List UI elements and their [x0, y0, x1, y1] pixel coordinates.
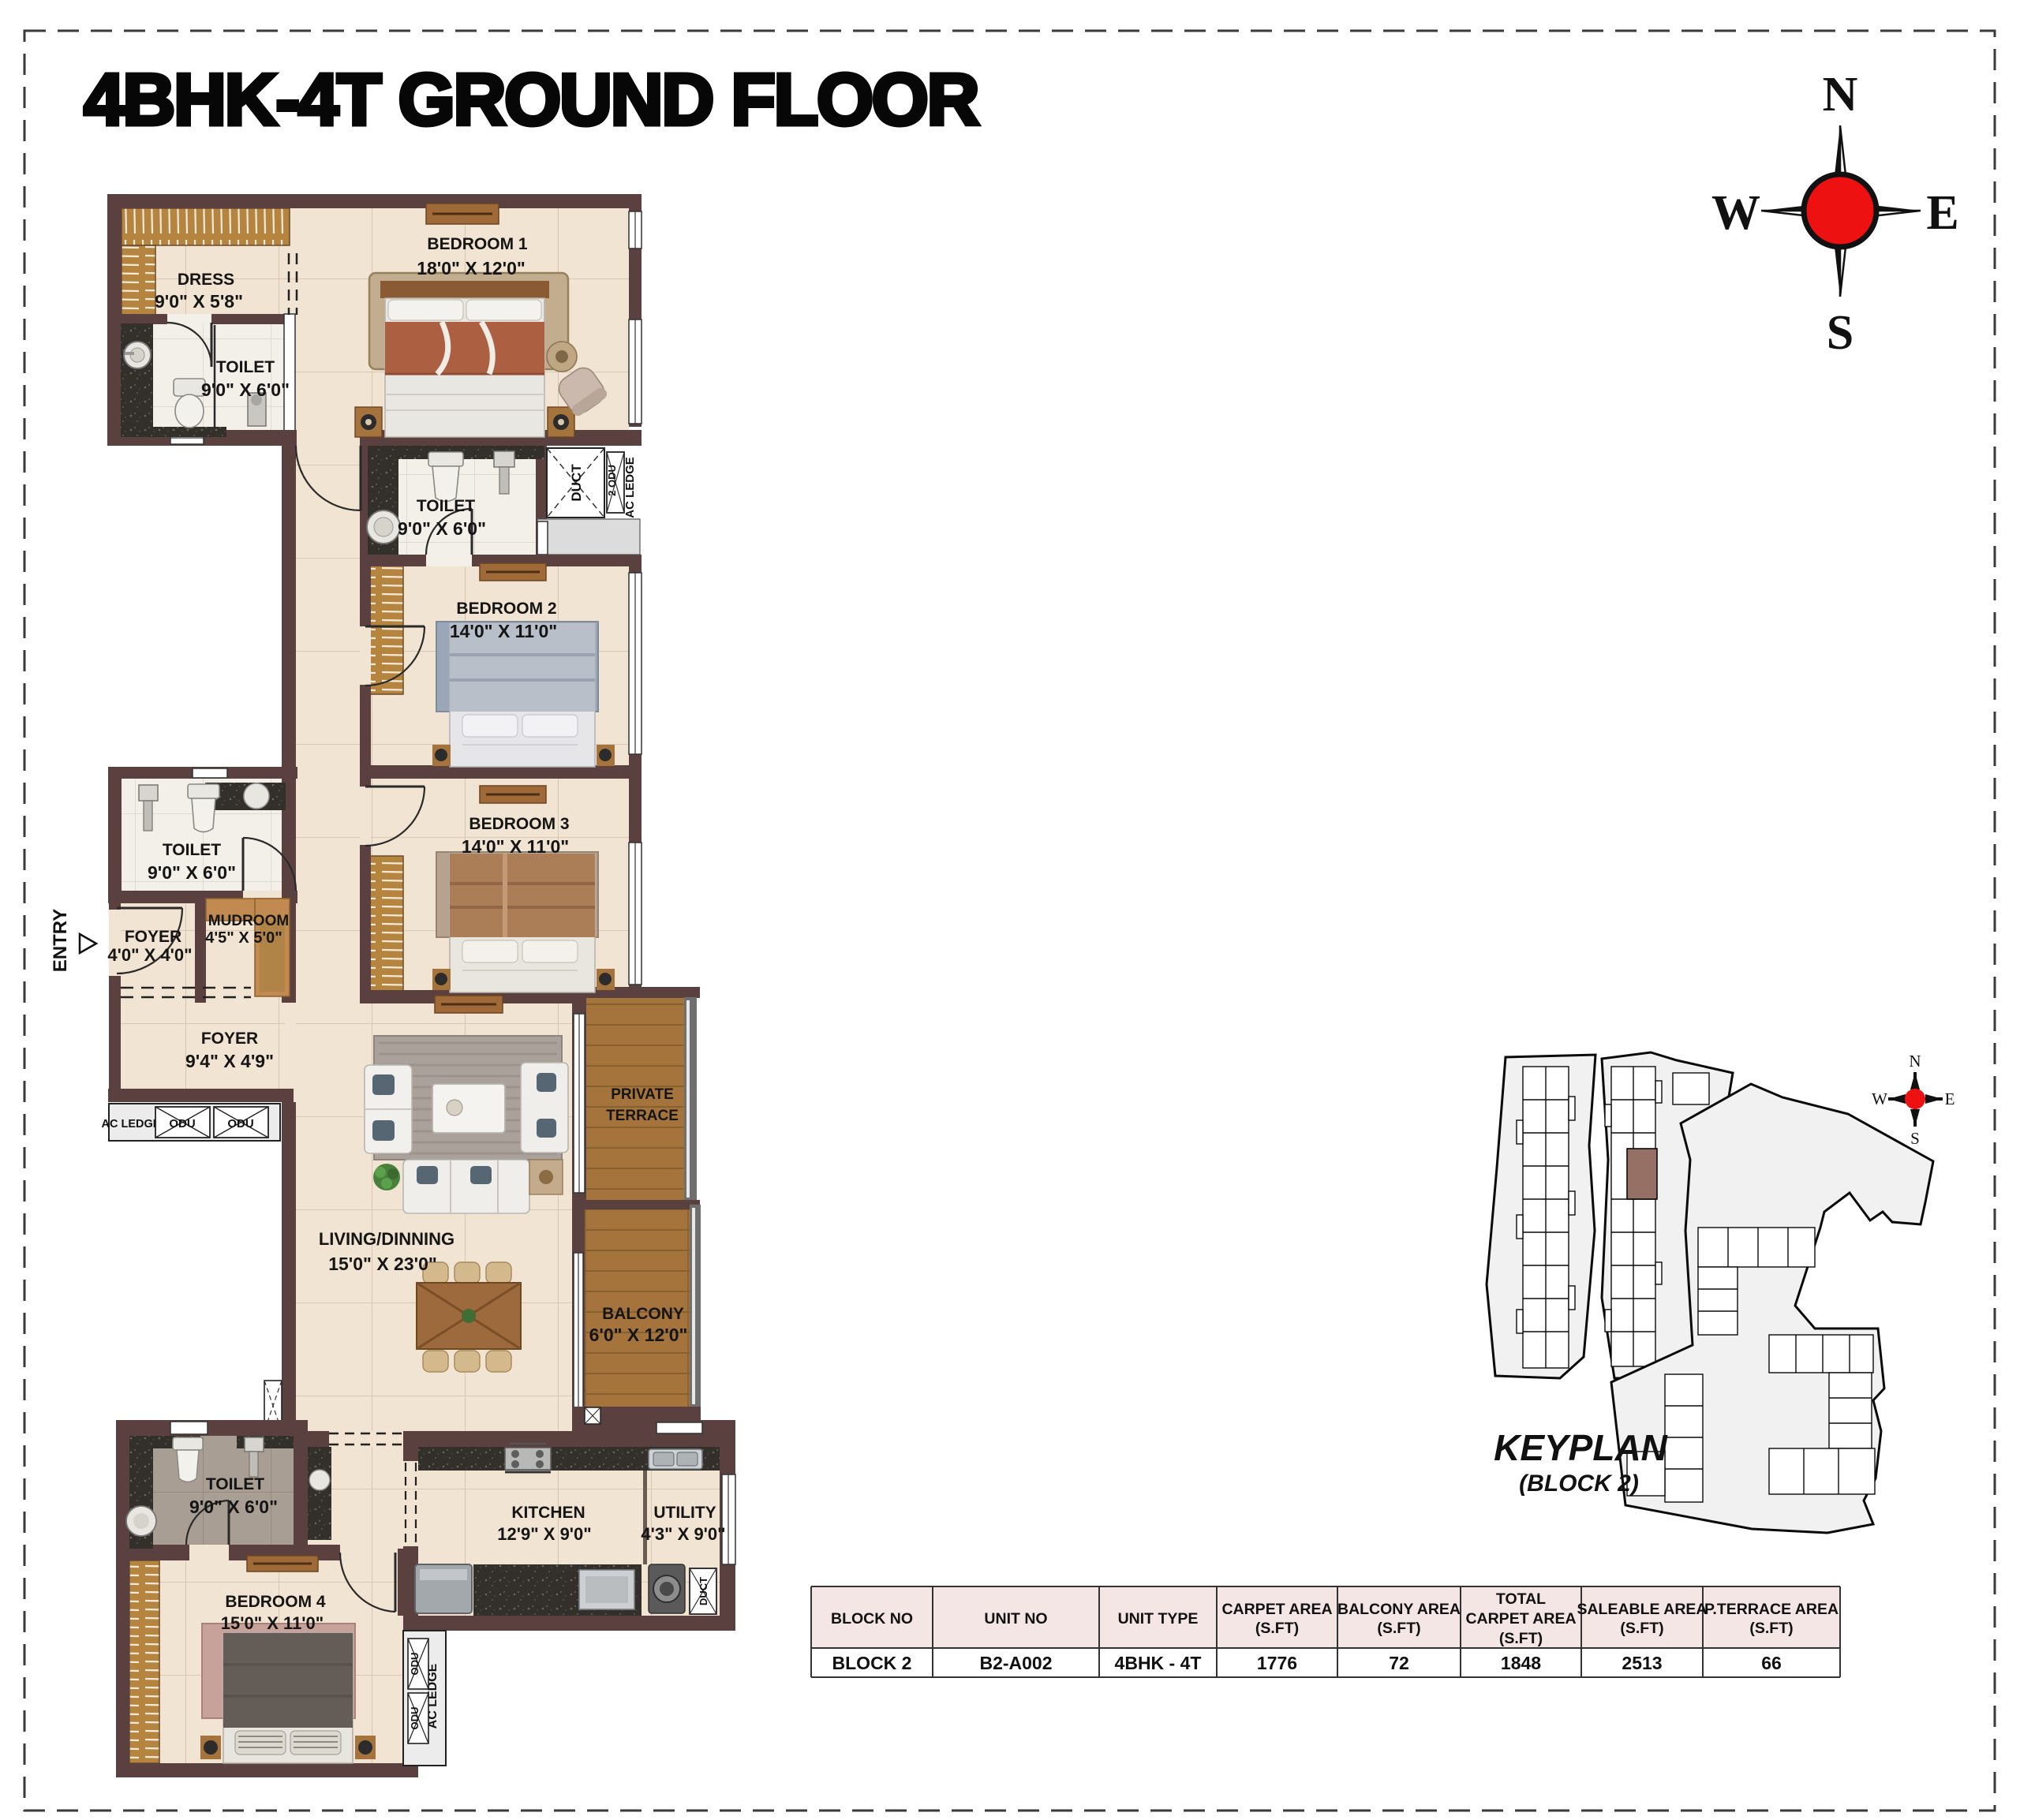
svg-text:SALEABLE AREA: SALEABLE AREA [1577, 1601, 1707, 1618]
svg-text:W: W [1711, 186, 1760, 240]
svg-text:15'0" X 23'0": 15'0" X 23'0" [328, 1254, 437, 1274]
svg-text:9'0" X 6'0": 9'0" X 6'0" [201, 379, 290, 400]
svg-text:66: 66 [1761, 1653, 1782, 1673]
svg-text:9'0" X 6'0": 9'0" X 6'0" [189, 1497, 278, 1517]
svg-text:4BHK - 4T: 4BHK - 4T [1115, 1653, 1202, 1673]
svg-text:UNIT TYPE: UNIT TYPE [1118, 1610, 1199, 1628]
svg-text:9'0" X 6'0": 9'0" X 6'0" [148, 862, 236, 883]
svg-text:BEDROOM 4: BEDROOM 4 [225, 1593, 326, 1611]
svg-text:9'0" X 5'8": 9'0" X 5'8" [155, 291, 243, 312]
svg-text:BLOCK 2: BLOCK 2 [832, 1653, 912, 1673]
svg-text:1848: 1848 [1501, 1653, 1541, 1673]
svg-text:P.TERRACE AREA: P.TERRACE AREA [1704, 1601, 1839, 1618]
svg-text:(S.FT): (S.FT) [1620, 1620, 1663, 1637]
svg-text:N: N [1909, 1052, 1921, 1071]
svg-text:S: S [1910, 1129, 1920, 1148]
svg-text:N: N [1823, 68, 1858, 121]
svg-text:BEDROOM 3: BEDROOM 3 [469, 815, 569, 833]
svg-text:CARPET AREA: CARPET AREA [1465, 1610, 1576, 1628]
svg-text:72: 72 [1389, 1653, 1409, 1673]
svg-text:14'0" X 11'0": 14'0" X 11'0" [450, 621, 557, 641]
svg-text:BLOCK NO: BLOCK NO [831, 1610, 913, 1628]
svg-text:(S.FT): (S.FT) [1499, 1630, 1543, 1647]
svg-text:ODU: ODU [409, 1707, 421, 1730]
svg-text:15'0" X 11'0": 15'0" X 11'0" [221, 1613, 324, 1633]
svg-text:4'3" X 9'0": 4'3" X 9'0" [641, 1524, 725, 1544]
svg-text:LIVING/DINNING: LIVING/DINNING [319, 1229, 454, 1249]
svg-text:BEDROOM 1: BEDROOM 1 [427, 235, 528, 253]
svg-text:FOYER: FOYER [125, 928, 181, 946]
svg-text:14'0" X 11'0": 14'0" X 11'0" [462, 836, 569, 857]
svg-text:BEDROOM 2: BEDROOM 2 [456, 600, 556, 618]
svg-text:FOYER: FOYER [201, 1030, 258, 1048]
svg-text:UNIT NO: UNIT NO [984, 1610, 1047, 1628]
svg-text:6'0" X 12'0": 6'0" X 12'0" [589, 1325, 688, 1345]
svg-text:ODU: ODU [169, 1117, 195, 1130]
svg-text:12'9" X 9'0": 12'9" X 9'0" [497, 1524, 591, 1544]
svg-text:AC LEDGE: AC LEDGE [623, 457, 637, 518]
svg-text:2513: 2513 [1622, 1653, 1662, 1673]
svg-text:PRIVATE: PRIVATE [611, 1086, 674, 1103]
svg-text:(S.FT): (S.FT) [1749, 1620, 1793, 1637]
svg-text:BALCONY AREA: BALCONY AREA [1337, 1601, 1461, 1618]
svg-text:2 ODU: 2 ODU [606, 465, 618, 496]
svg-text:TOILET: TOILET [216, 358, 275, 376]
svg-text:4'5" X 5'0": 4'5" X 5'0" [205, 929, 282, 947]
svg-text:DUCT: DUCT [569, 464, 584, 502]
svg-text:B2-A002: B2-A002 [979, 1653, 1052, 1673]
svg-text:TOILET: TOILET [206, 1475, 264, 1493]
svg-text:S: S [1827, 306, 1854, 360]
svg-text:AC LEDGE: AC LEDGE [102, 1118, 161, 1130]
svg-text:KEYPLAN: KEYPLAN [1494, 1427, 1668, 1468]
svg-text:TOTAL: TOTAL [1496, 1590, 1546, 1608]
svg-text:CARPET AREA: CARPET AREA [1221, 1601, 1332, 1618]
svg-text:(S.FT): (S.FT) [1377, 1620, 1420, 1637]
svg-text:9'4" X 4'9": 9'4" X 4'9" [185, 1051, 274, 1071]
svg-text:TERRACE: TERRACE [606, 1108, 679, 1124]
svg-text:4BHK-4T GROUND FLOOR: 4BHK-4T GROUND FLOOR [84, 58, 979, 140]
svg-text:(S.FT): (S.FT) [1255, 1620, 1299, 1637]
svg-text:(BLOCK 2): (BLOCK 2) [1519, 1471, 1639, 1497]
svg-text:18'0" X 12'0": 18'0" X 12'0" [417, 258, 526, 278]
svg-text:TOILET: TOILET [163, 841, 221, 859]
svg-text:1776: 1776 [1257, 1653, 1297, 1673]
svg-text:BALCONY: BALCONY [602, 1305, 684, 1323]
svg-text:MUDROOM: MUDROOM [208, 913, 289, 929]
svg-text:UTILITY: UTILITY [653, 1504, 716, 1522]
svg-text:E: E [1926, 186, 1958, 240]
svg-text:ODU: ODU [227, 1117, 253, 1130]
svg-text:4'0" X 4'0": 4'0" X 4'0" [107, 945, 192, 965]
svg-text:ENTRY: ENTRY [50, 909, 71, 972]
svg-text:TOILET: TOILET [417, 497, 475, 515]
svg-text:W: W [1872, 1089, 1887, 1108]
svg-text:ODU: ODU [409, 1653, 421, 1676]
svg-text:DRESS: DRESS [178, 271, 234, 289]
svg-text:DUCT: DUCT [698, 1577, 709, 1605]
svg-text:E: E [1945, 1089, 1955, 1108]
svg-text:KITCHEN: KITCHEN [511, 1504, 585, 1522]
svg-text:9'0" X 6'0": 9'0" X 6'0" [398, 518, 486, 539]
